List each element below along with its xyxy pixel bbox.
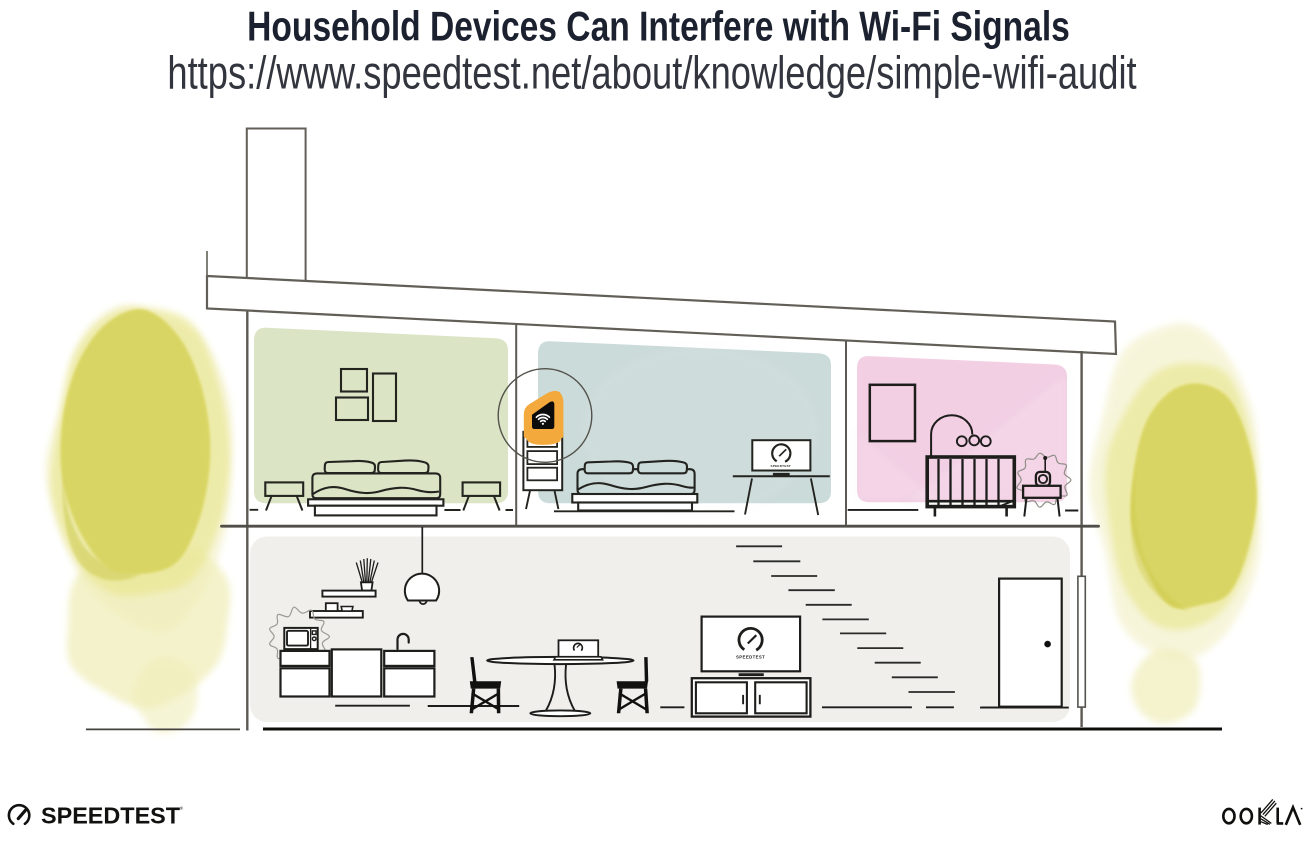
svg-text:SPEEDTEST: SPEEDTEST (736, 654, 765, 659)
svg-text:https://www.speedtest.net/abou: https://www.speedtest.net/about/knowledg… (167, 46, 1137, 98)
svg-text:Household Devices Can Interfer: Household Devices Can Interfere with Wi-… (247, 4, 1070, 50)
svg-text:®: ® (180, 805, 184, 811)
svg-text:SPEEDTEST: SPEEDTEST (771, 464, 792, 468)
svg-text:SPEEDTEST: SPEEDTEST (41, 803, 181, 829)
